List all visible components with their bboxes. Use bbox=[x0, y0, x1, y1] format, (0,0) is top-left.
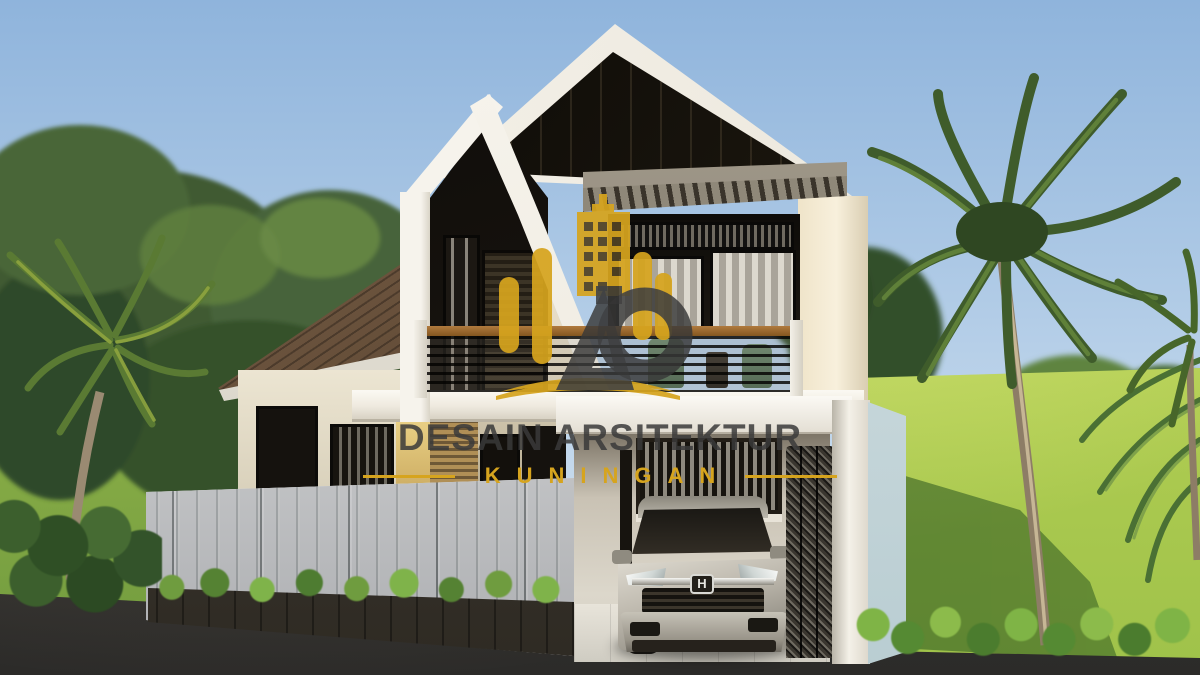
watermark-subtitle: KUNINGAN bbox=[469, 463, 732, 489]
desain-arsitektur-logo bbox=[0, 0, 1200, 675]
architectural-render: H bbox=[0, 0, 1200, 675]
gold-line-right bbox=[745, 475, 837, 478]
gold-line-left bbox=[363, 475, 455, 478]
watermark-title: DESAIN ARSITEKTUR bbox=[0, 417, 1200, 459]
watermark-subtitle-row: KUNINGAN bbox=[0, 463, 1200, 489]
